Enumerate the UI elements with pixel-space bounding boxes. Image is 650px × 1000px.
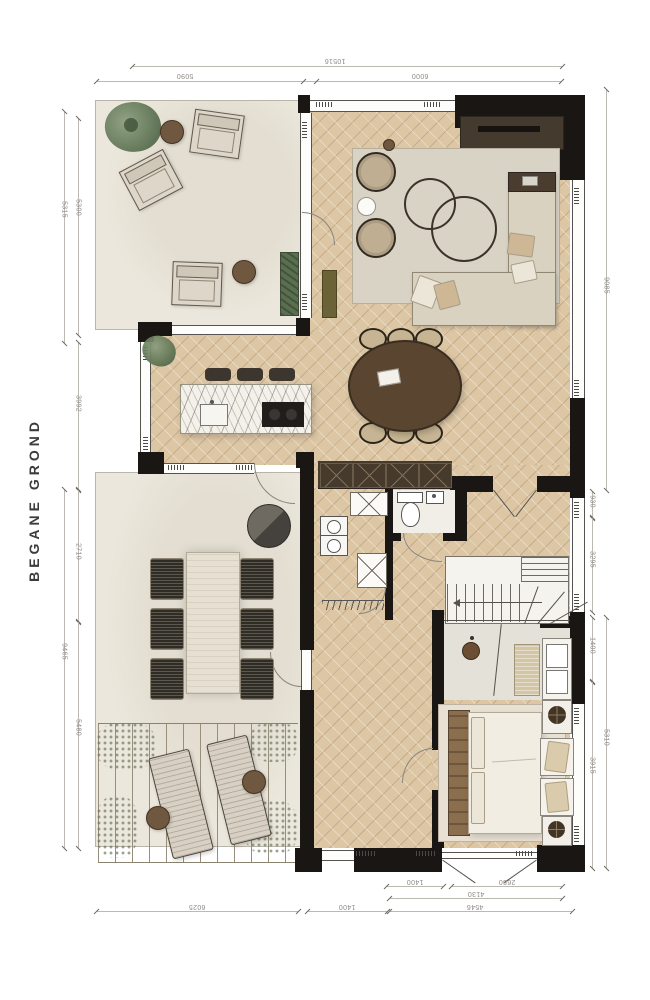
outdoor-dining-table <box>186 552 240 694</box>
door-mat <box>322 270 337 318</box>
wall-segment <box>295 848 322 872</box>
wall-segment <box>296 318 310 336</box>
bar-stool <box>269 368 295 381</box>
potted-plant-icon <box>548 821 565 838</box>
dimension-label: 5090 <box>165 72 205 79</box>
dimension-line <box>390 911 572 912</box>
dryer-icon <box>320 535 348 556</box>
dimension-line <box>390 898 562 899</box>
dimension-label: 9085 <box>603 266 610 306</box>
hatch-mark <box>416 851 436 856</box>
dimension-label: 5480 <box>75 708 82 748</box>
bathroom-divider <box>444 620 570 621</box>
hatch-mark <box>143 436 148 450</box>
dimension-label: 2680 <box>487 878 527 885</box>
dimension-label: 9465 <box>61 632 68 672</box>
door-leaf <box>442 860 475 884</box>
dimension-label: 6000 <box>400 72 440 79</box>
hatch-mark <box>356 851 376 856</box>
dining-table <box>348 340 462 432</box>
chair-cushion <box>544 741 570 774</box>
vines <box>96 796 138 858</box>
outdoor-chair <box>150 658 184 700</box>
bed-headboard <box>448 710 470 836</box>
dimension-label: 2710 <box>75 532 82 572</box>
dimension-line <box>452 886 562 887</box>
wall-segment <box>443 533 467 541</box>
window <box>172 325 296 335</box>
dimension-label: 4546 <box>455 903 495 910</box>
vanity-sink <box>546 644 568 668</box>
wall-segment <box>300 455 314 650</box>
side-table <box>146 806 170 830</box>
hatch-mark <box>424 102 442 107</box>
dryer-drum <box>327 539 341 553</box>
wall-segment <box>385 533 401 541</box>
bath-mat <box>514 644 540 696</box>
coffee-table <box>431 196 497 262</box>
tree-core <box>124 118 138 132</box>
wall-segment <box>298 95 310 113</box>
vines <box>250 722 298 762</box>
coat-rack <box>322 600 384 615</box>
dimension-line <box>133 66 562 67</box>
dimension-label: 1400 <box>395 878 435 885</box>
dimension-label: 5310 <box>603 718 610 758</box>
outdoor-armchair <box>171 261 223 307</box>
dimension-label: 3992 <box>75 384 82 424</box>
shower-head <box>470 636 474 640</box>
wall-segment <box>432 610 444 708</box>
window <box>572 180 585 398</box>
bar-stool <box>237 368 263 381</box>
hatch-mark <box>168 465 184 470</box>
floor-plan-sheet: BEGANE GROND <box>0 0 650 1000</box>
cooktop <box>262 402 304 427</box>
outdoor-chair <box>240 558 274 600</box>
washer-icon <box>320 516 348 537</box>
bar-stool <box>205 368 231 381</box>
wall-segment <box>296 452 314 468</box>
washer-drum <box>327 520 341 534</box>
floor-lamp <box>383 139 395 151</box>
wall-segment <box>537 476 570 492</box>
outdoor-chair <box>150 608 184 650</box>
hatch-mark <box>302 292 307 310</box>
dimension-line <box>387 886 443 887</box>
dimension-label: 930 <box>589 482 596 522</box>
outdoor-chair <box>240 658 274 700</box>
side-table <box>357 197 376 216</box>
pillow <box>471 772 485 824</box>
tall-cabinet <box>350 492 388 516</box>
dimension-label: 3915 <box>589 746 596 786</box>
stair-upper-treads <box>521 556 568 582</box>
dimension-label: 5300 <box>75 188 82 228</box>
basin-tap <box>432 494 436 498</box>
dimension-label: 1400 <box>589 626 596 666</box>
dimension-label: 5315 <box>61 190 68 230</box>
hatch-mark <box>316 102 334 107</box>
toilet-icon <box>401 502 420 527</box>
side-table <box>242 770 266 794</box>
tv-console <box>460 116 564 150</box>
outdoor-chair <box>150 558 184 600</box>
cabinet-front <box>419 463 452 488</box>
armchair <box>356 218 396 258</box>
door-threshold <box>442 852 537 853</box>
planter <box>280 252 299 316</box>
cabinet-front <box>320 463 353 488</box>
sink <box>200 404 228 426</box>
stair-direction-line <box>460 602 542 603</box>
tv <box>478 126 540 132</box>
bedroom-hall-floor <box>300 625 432 848</box>
pillow <box>471 717 485 769</box>
hatch-mark <box>574 826 579 842</box>
chair-cushion <box>544 781 569 813</box>
side-table <box>232 260 256 284</box>
dimension-label: 3295 <box>589 540 596 580</box>
outdoor-armchair <box>189 109 245 160</box>
door-threshold <box>442 858 537 859</box>
vanity-sink <box>546 670 568 694</box>
wall-segment <box>300 690 314 848</box>
vines <box>96 722 156 770</box>
dimension-label: 10516 <box>315 57 355 64</box>
fire-pit <box>247 504 291 548</box>
armchair <box>356 152 396 192</box>
dimension-line <box>97 911 298 912</box>
shower-drain <box>462 642 480 660</box>
dimension-label: 1400 <box>327 903 367 910</box>
wall-segment <box>537 845 585 872</box>
dimension-label: 4130 <box>456 890 496 897</box>
hatch-mark <box>574 186 579 204</box>
window <box>301 650 312 690</box>
side-table <box>160 120 184 144</box>
wall-segment <box>570 398 585 498</box>
hatch-mark <box>574 708 579 724</box>
dimension-line <box>308 911 387 912</box>
cabinet-front <box>386 463 419 488</box>
hatch-mark <box>236 465 252 470</box>
outdoor-chair <box>240 608 274 650</box>
cabinet-front <box>353 463 386 488</box>
window <box>322 850 354 861</box>
wall-segment <box>138 452 164 474</box>
hatch-mark <box>574 502 579 518</box>
potted-plant-icon <box>548 706 566 724</box>
hatch-mark <box>574 378 579 396</box>
dimension-line <box>97 81 561 82</box>
wall-segment <box>570 612 585 704</box>
stair-arrow <box>453 599 460 607</box>
page-title: BEGANE GROND <box>26 418 42 582</box>
hatch-mark <box>302 120 307 138</box>
dimension-label: 6025 <box>177 903 217 910</box>
pillow <box>507 232 536 257</box>
remote <box>522 176 538 186</box>
faucet <box>210 400 214 404</box>
appliance <box>357 553 387 588</box>
